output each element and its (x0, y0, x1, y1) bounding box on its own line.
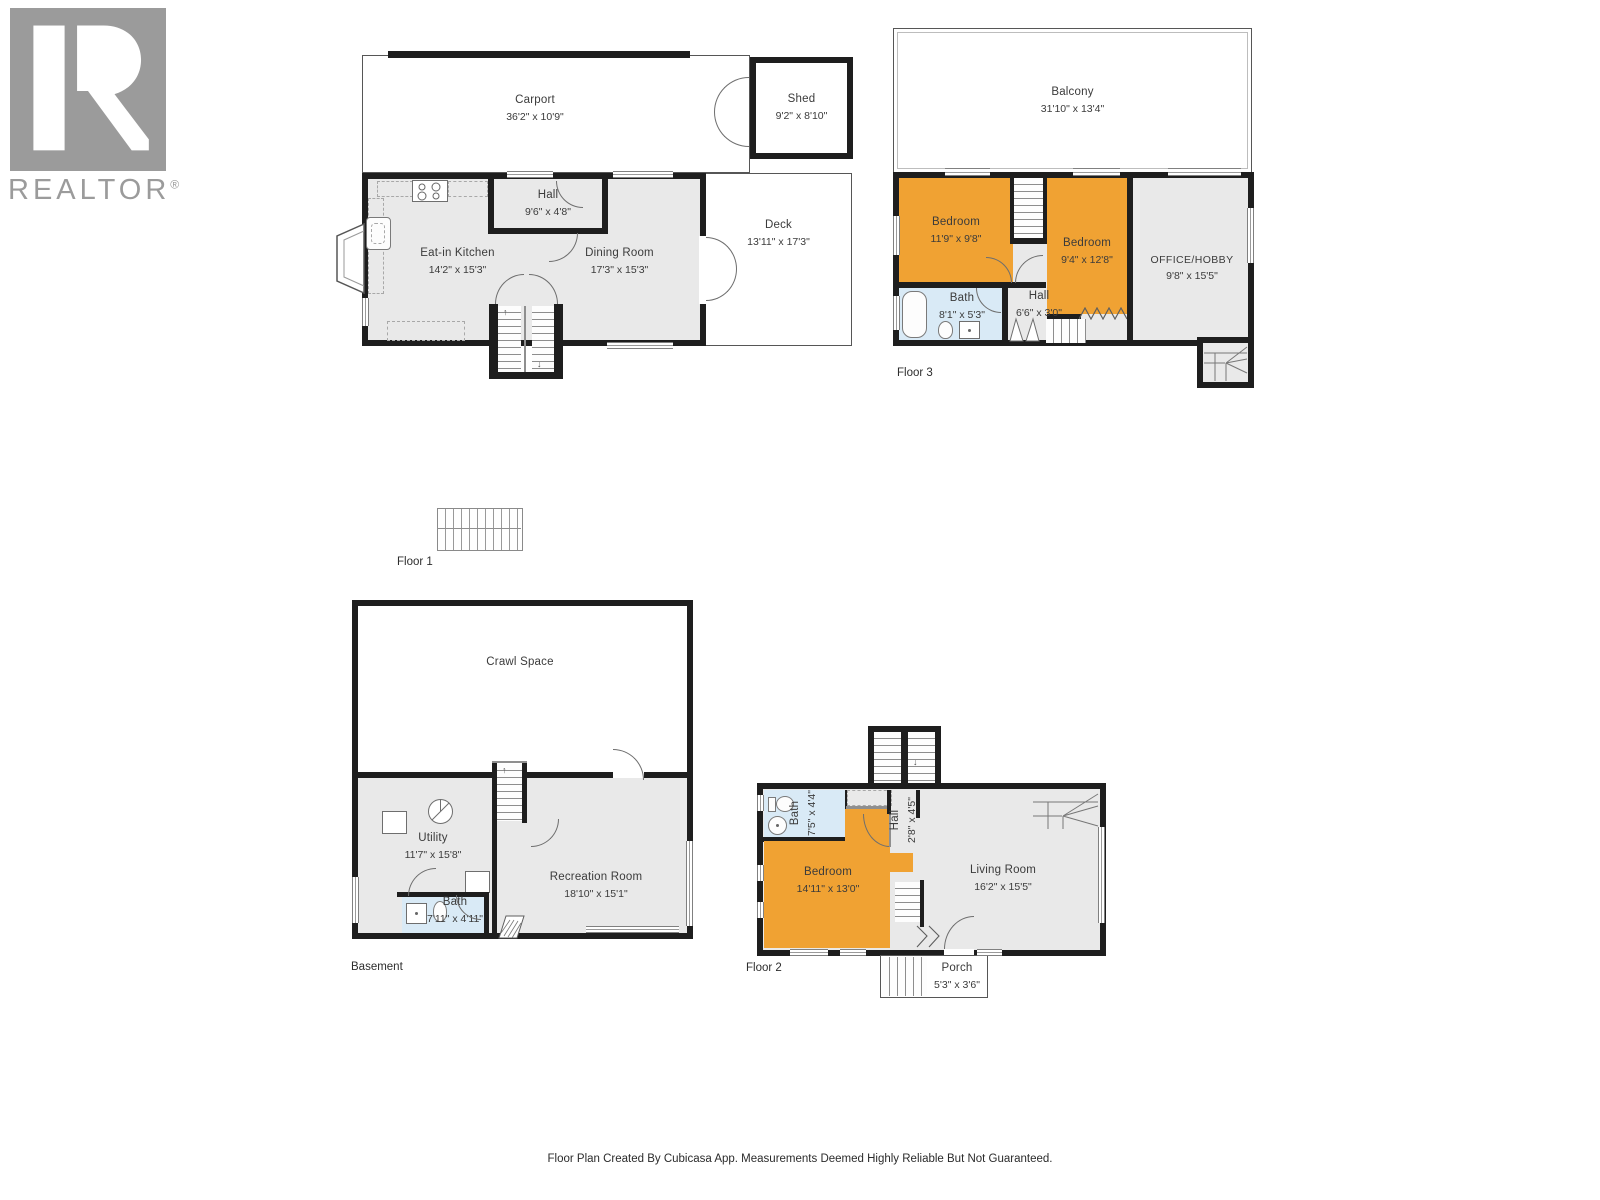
realtor-r-icon (10, 8, 166, 171)
room-dims: 11'9" x 9'8" (931, 233, 982, 246)
room-shed: Shed 9'2" x 8'10" (750, 57, 853, 159)
porch-stairs (882, 957, 927, 996)
bedroom-label-group: Bedroom 14'11" x 13'0" (770, 863, 886, 899)
wall (358, 772, 492, 778)
window-icon (362, 298, 369, 326)
shed-label-group: Shed 9'2" x 8'10" (756, 63, 847, 153)
winder-stairs-icon (1032, 790, 1100, 830)
room-label: Carport (515, 94, 555, 108)
window-icon (613, 171, 673, 178)
room-dims: 9'4" x 12'8" (1061, 254, 1113, 267)
floor3-label: Floor 3 (897, 367, 933, 379)
room-dims: 11'7" x 15'8" (405, 849, 462, 862)
toilet-icon (938, 321, 953, 339)
basement-label: Basement (351, 961, 403, 973)
stairs (497, 764, 522, 821)
kitchen-sink-icon (366, 217, 391, 250)
room-dining: Dining Room 17'3" x 15'3" (557, 242, 682, 282)
counter-outline (448, 181, 488, 197)
sink-basin (371, 223, 385, 244)
room-label: Balcony (1051, 86, 1093, 100)
wall (1010, 238, 1047, 244)
room-dims: 14'2" x 15'3" (429, 264, 487, 277)
room-dims: 9'2" x 8'10" (776, 110, 828, 123)
floor1-label: Floor 1 (397, 556, 433, 568)
counter-outline (377, 181, 413, 197)
sink-icon (959, 321, 980, 339)
closet-shelf-outline (847, 790, 892, 806)
door-opening (699, 236, 706, 304)
room-label: Bedroom (932, 216, 980, 230)
room-label: Shed (788, 93, 816, 107)
room-label: Bath (950, 292, 974, 306)
window-icon (1098, 827, 1105, 923)
exterior-stairs-icon (437, 508, 523, 551)
hatched-door-icon (496, 914, 527, 940)
bedroom-door-nook (890, 853, 913, 872)
realtor-logo: REALTOR® (8, 6, 218, 216)
room-label: Porch (941, 962, 972, 976)
wall (492, 762, 497, 823)
room-dims: 16'2" x 15'5" (974, 881, 1032, 894)
room-crawl-space: Crawl Space (440, 652, 600, 674)
stair-arrow-up-icon: ↑ (502, 766, 507, 775)
accordion-door-icon (1079, 307, 1127, 320)
window-icon (977, 949, 1002, 956)
room-label: Crawl Space (486, 656, 553, 670)
wall (388, 51, 690, 58)
wall (554, 304, 563, 378)
disclaimer-text: Floor Plan Created By Cubicasa App. Meas… (0, 1153, 1600, 1165)
stair-divider (524, 306, 526, 372)
wall (1010, 178, 1014, 242)
room-dims: 7'5" x 4'4" (806, 790, 819, 836)
room-kitchen: Eat-in Kitchen 14'2" x 15'3" (395, 242, 520, 282)
room-carport: Carport 36'2" x 10'9" (455, 88, 615, 130)
window-icon (893, 296, 900, 330)
room-dims: 31'10" x 13'4" (1041, 103, 1104, 116)
wall (522, 762, 527, 823)
room-label: Dining Room (585, 247, 654, 261)
stairs-up (532, 306, 554, 372)
stairs (1013, 178, 1043, 242)
basement-plan: Crawl Space ↑ Utility 11'7" x 15'8" Recr… (340, 590, 720, 990)
window-icon (352, 877, 359, 923)
window-icon (757, 902, 764, 918)
room-label: Hall (538, 189, 559, 203)
room-label: Utility (418, 832, 448, 846)
bedroom2-label-group: Bedroom 9'4" x 12'8" (1047, 232, 1127, 272)
stair-arrow-down-icon: ↓ (537, 360, 542, 369)
realtor-logo-block-icon (10, 8, 166, 171)
realtor-text: REALTOR (8, 174, 170, 206)
counter-outline (387, 321, 465, 341)
stairs-down (498, 306, 521, 372)
room-dims: 2'8" x 4'5" (906, 797, 919, 843)
room-hall2: Hall 2'8" x 4'5" (888, 794, 920, 846)
folding-door-icon (916, 924, 941, 949)
bathtub-icon (902, 291, 927, 338)
winder-stairs-icon (1203, 343, 1248, 382)
stair-midline (437, 528, 521, 529)
window-icon (1073, 168, 1120, 176)
room-hall: Hall 9'6" x 4'8" (488, 173, 608, 234)
room-label: Deck (765, 219, 792, 233)
room-label: Recreation Room (550, 871, 642, 885)
toilet-tank (768, 797, 776, 812)
window-icon (1168, 168, 1241, 176)
bath2-label-group: Bath 7'5" x 4'4" (787, 785, 821, 841)
room-living: Living Room 16'2" x 15'5" (936, 860, 1070, 898)
floor3-plan: Balcony 31'10" x 13'4" Bedroom 11'9" x 9… (880, 20, 1275, 400)
window-icon (1247, 208, 1254, 263)
window-icon (893, 216, 900, 255)
hall-label-group: Hall 9'6" x 4'8" (494, 179, 602, 228)
floor-plan-page: REALTOR® Carport 36'2" x 10'9" Shed 9'2"… (0, 0, 1600, 1200)
room-dims: 9'6" x 4'8" (525, 206, 571, 219)
realtor-wordmark: REALTOR® (8, 174, 179, 207)
room-label: Hall (1029, 290, 1050, 304)
wall (901, 732, 908, 783)
window-icon (945, 168, 990, 176)
room-office: OFFICE/HOBBY 9'8" x 15'5" (1133, 248, 1251, 288)
floor2-label: Floor 2 (746, 962, 782, 974)
window-icon (586, 926, 679, 933)
room-label: Living Room (970, 864, 1036, 878)
room-label: Bedroom (1063, 237, 1111, 251)
stair-arrow-down-icon: ↓ (913, 758, 918, 767)
room-dims: 9'8" x 15'5" (1166, 270, 1218, 283)
window-icon (686, 841, 693, 926)
equipment-box-icon (465, 871, 490, 893)
stairs (1046, 319, 1086, 343)
recreation-label-group: Recreation Room 18'10" x 15'1" (525, 868, 667, 904)
stair-top-line (492, 761, 527, 763)
utility-label-group: Utility 11'7" x 15'8" (386, 830, 480, 864)
room-label: Eat-in Kitchen (420, 247, 494, 261)
closet-shelves (895, 882, 920, 922)
registered-symbol: ® (170, 177, 179, 191)
wall (489, 372, 563, 379)
window-icon (840, 949, 866, 956)
room-label: Bedroom (804, 866, 852, 880)
room-dims: 36'2" x 10'9" (506, 111, 564, 124)
stairs (874, 732, 901, 783)
stair-bumpout (1197, 337, 1254, 388)
room-dims: 5'3" x 3'6" (934, 979, 980, 992)
window-icon (757, 795, 764, 811)
room-dims: 8'1" x 5'3" (939, 309, 985, 322)
room-dims: 18'10" x 15'1" (564, 888, 627, 901)
wall (489, 304, 498, 378)
room-dims: 17'3" x 15'3" (591, 264, 649, 277)
double-door-icon (1008, 316, 1041, 342)
room-dims: 13'11" x 17'3" (747, 236, 810, 249)
floor1-plan: Carport 36'2" x 10'9" Shed 9'2" x 8'10" … (335, 40, 865, 585)
room-label: Hall (889, 810, 903, 831)
window-icon (607, 342, 673, 349)
sink-icon (768, 816, 787, 835)
window-icon (757, 865, 764, 881)
room-label: OFFICE/HOBBY (1151, 254, 1234, 267)
floor2-plan: ↓ Bath 7'5" x 4'4" Bedroom 14'11" x 13'0… (740, 710, 1130, 1010)
window-icon (507, 171, 553, 178)
stove-icon (412, 180, 448, 202)
stair-arrow-up-icon: ↑ (503, 308, 508, 317)
room-porch: Porch 5'3" x 3'6" (928, 960, 986, 994)
wall (920, 880, 924, 927)
bay-window-icon (335, 223, 365, 295)
room-dims: 14'11" x 13'0" (797, 883, 860, 896)
window-icon (790, 949, 828, 956)
room-balcony: Balcony 31'10" x 13'4" (894, 29, 1251, 172)
fan-icon (427, 798, 454, 825)
room-label: Bath (789, 801, 803, 825)
wall (527, 772, 687, 778)
balcony-outline: Balcony 31'10" x 13'4" (893, 28, 1252, 173)
